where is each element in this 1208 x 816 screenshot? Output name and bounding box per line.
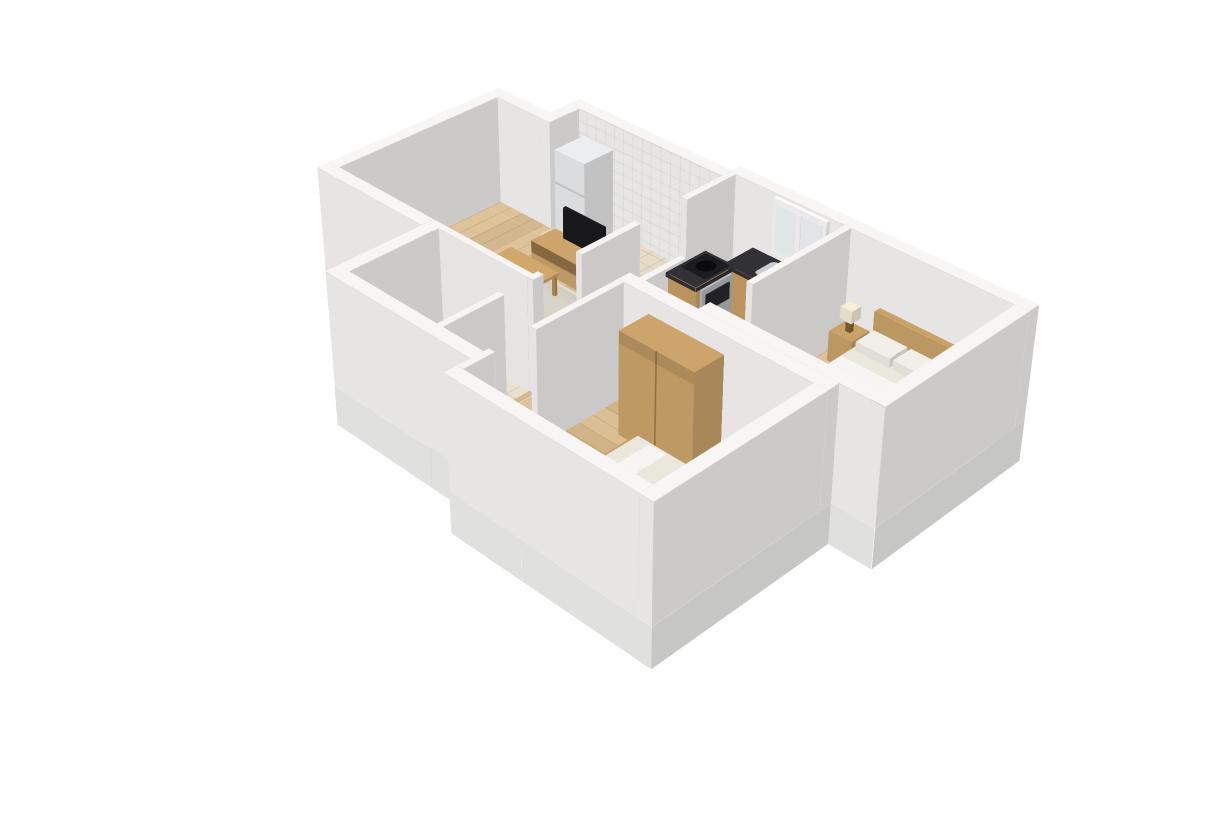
floorplan-scene — [0, 0, 1208, 816]
coffee-table-leg-e — [554, 277, 557, 297]
